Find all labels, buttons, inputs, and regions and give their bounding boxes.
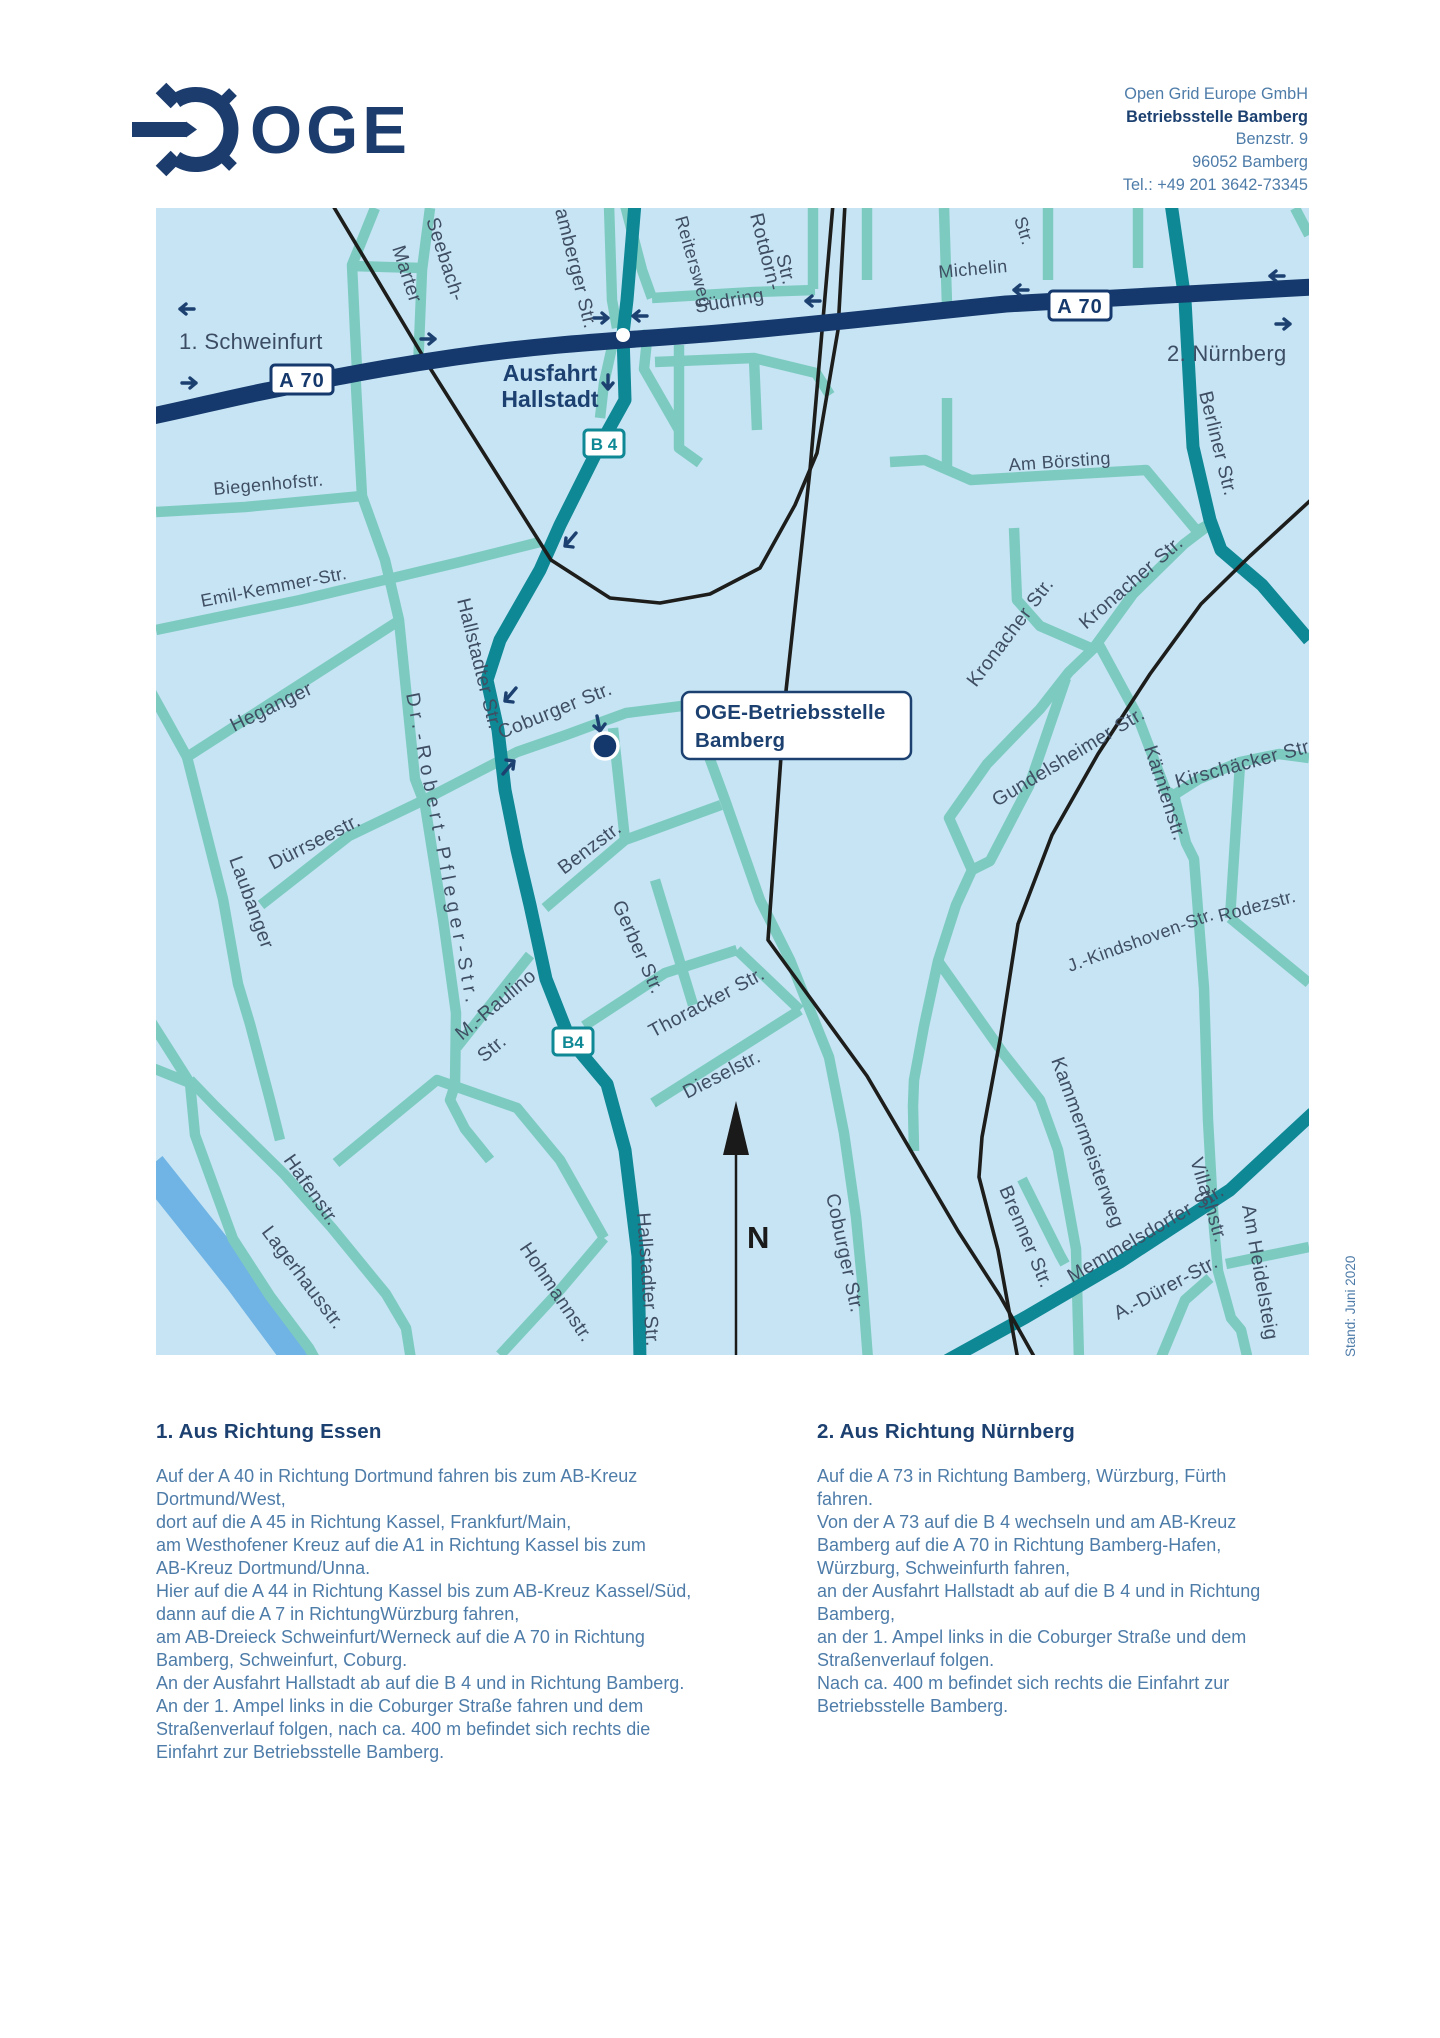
svg-text:A 70: A 70 [279, 370, 325, 392]
svg-text:OGE-Betriebsstelle: OGE-Betriebsstelle [695, 701, 885, 724]
svg-text:B 4: B 4 [591, 435, 618, 454]
svg-text:2. Nürnberg: 2. Nürnberg [1167, 341, 1286, 366]
svg-text:OGE: OGE [250, 93, 411, 168]
svg-text:1. Schweinfurt: 1. Schweinfurt [179, 329, 323, 354]
svg-text:Ausfahrt: Ausfahrt [503, 360, 598, 386]
svg-text:N: N [747, 1220, 769, 1255]
svg-text:Hallstadt: Hallstadt [501, 386, 598, 412]
svg-text:B4: B4 [562, 1033, 584, 1052]
svg-text:Bamberg: Bamberg [695, 729, 785, 752]
svg-text:A 70: A 70 [1057, 296, 1103, 318]
